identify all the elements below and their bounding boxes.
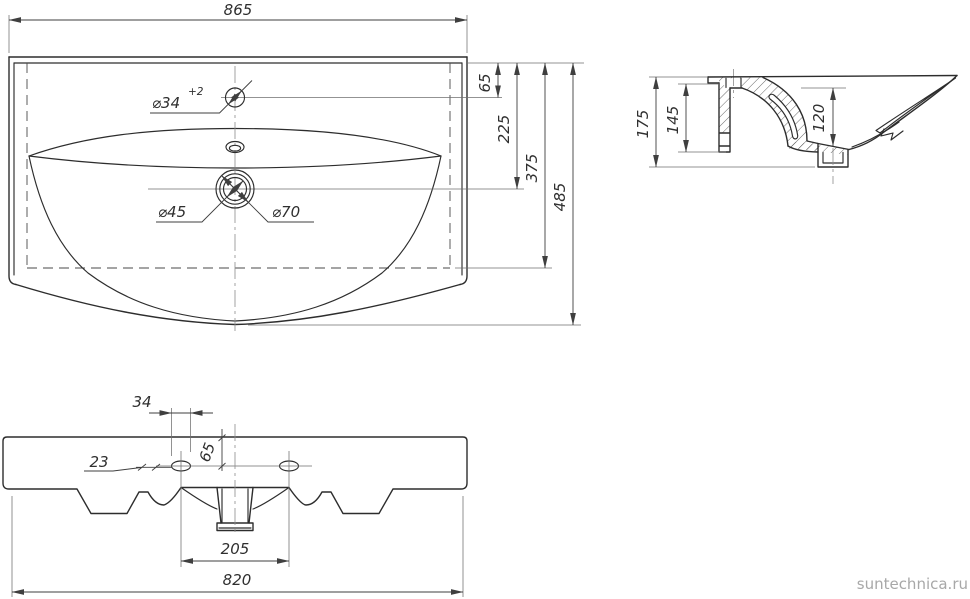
dim-mounting-width-label: 820: [223, 571, 252, 589]
dim-edge-to-faucet: 65: [476, 63, 498, 98]
dim-edge-to-deck-back: 375: [523, 63, 545, 268]
plan-basin-outline: [16, 129, 460, 325]
dim-holes-spacing-label: 205: [221, 540, 250, 558]
plan-faucet-hole: ⌀34 +2: [150, 81, 252, 114]
dim-faucet-diameter: ⌀34: [152, 94, 180, 112]
dim-inner-height: 145: [664, 84, 686, 152]
section-wall-hatch: [719, 83, 730, 133]
dim-overall-width: 865: [9, 1, 467, 53]
dim-holes-spacing: 205: [181, 540, 289, 561]
dim-overall-height: 175: [634, 77, 656, 167]
dim-inner-height-label: 145: [664, 106, 682, 135]
dim-slot-length-label: 34: [132, 393, 151, 411]
washbasin-drawing: ⌀34 +2 ⌀45 ⌀70 865: [0, 0, 970, 599]
section-outline: [708, 76, 957, 168]
dim-edge-to-faucet-label: 65: [476, 73, 494, 92]
depth-dimension-chain: 65 225 375 485: [248, 63, 584, 325]
dim-overall-height-label: 175: [634, 110, 652, 139]
dim-bowl-depth-label: 120: [810, 104, 828, 133]
watermark-site: suntechnica.ru: [857, 575, 968, 593]
dim-offset: 23: [84, 453, 172, 471]
section-dimensions: 175 145 120: [634, 77, 846, 167]
technical-drawing-sheet: ⌀34 +2 ⌀45 ⌀70 865: [0, 0, 970, 599]
dim-edge-to-holes: 65: [196, 429, 226, 471]
dim-edge-to-drain-label: 225: [495, 115, 513, 144]
dim-drain-outer-diameter: ⌀70: [272, 203, 300, 221]
dim-drain-inner-diameter: ⌀45: [158, 203, 186, 221]
dim-edge-to-holes-label: 65: [196, 440, 219, 464]
section-view: 175 145 120: [634, 69, 957, 184]
dim-overall-depth-label: 485: [551, 183, 569, 212]
dim-edge-to-deck-back-label: 375: [523, 154, 541, 183]
dim-faucet-tolerance: +2: [188, 86, 204, 98]
front-view: 34 23 65 205 820: [3, 393, 467, 597]
dim-offset-label: 23: [89, 453, 108, 471]
dim-overall-depth: 485: [551, 63, 573, 325]
dim-bowl-depth: 120: [810, 88, 833, 146]
plan-view: ⌀34 +2 ⌀45 ⌀70 865: [9, 1, 524, 331]
dim-overall-width-label: 865: [224, 1, 253, 19]
